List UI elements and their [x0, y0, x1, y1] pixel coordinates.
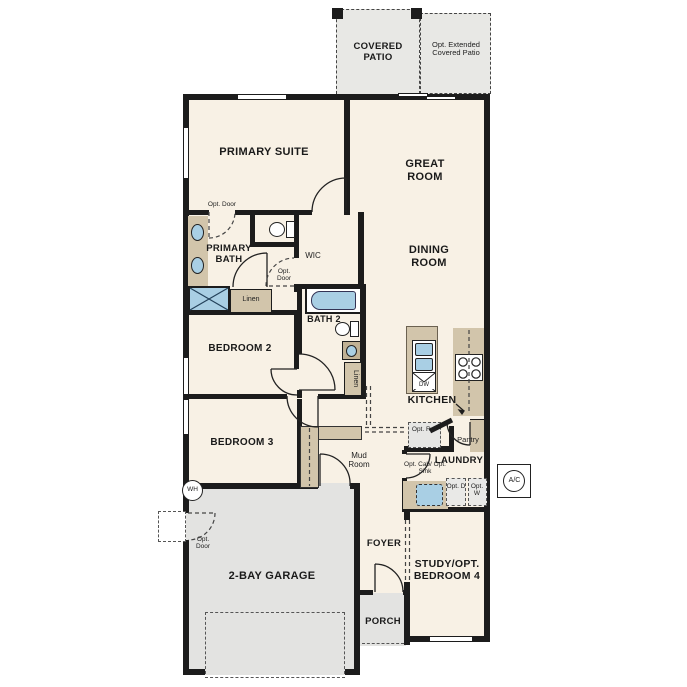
opt-extended-patio-label: Opt. Extended Covered Patio	[424, 41, 488, 58]
garage-door-zone	[205, 612, 345, 674]
mud-room-label: Mud Room	[342, 452, 376, 470]
wall	[183, 483, 318, 489]
wall	[354, 483, 360, 675]
wall	[358, 212, 364, 287]
foyer-label: FOYER	[359, 538, 409, 549]
opt-side-door-stoop	[158, 511, 186, 542]
floor-plan: COVERED PATIO Opt. Extended Covered Pati…	[0, 0, 687, 687]
primary-bath-label: PRIMARY BATH	[199, 243, 259, 265]
wall	[297, 390, 302, 398]
laundry-sink	[416, 484, 443, 506]
kitchen-sink	[415, 358, 433, 371]
garage-label: 2-BAY GARAGE	[227, 570, 317, 583]
toilet	[269, 222, 285, 237]
opt-ref-label: Opt. Ref	[409, 426, 439, 433]
opt-door-label: Opt. Door	[190, 536, 216, 551]
wh-label: WH	[182, 486, 203, 493]
opt-washer-label: Opt. W	[467, 483, 487, 498]
covered-patio-label: COVERED PATIO	[348, 41, 408, 63]
patio-post	[332, 8, 343, 19]
bedroom2-label: BEDROOM 2	[185, 343, 295, 355]
toilet	[350, 321, 359, 337]
wall	[350, 483, 360, 489]
bathtub	[311, 291, 356, 310]
bath2-label: BATH 2	[304, 314, 344, 325]
opt-door-label: Opt. Door	[271, 268, 297, 283]
sink	[346, 345, 357, 357]
opt-dryer-label: Opt. D	[446, 483, 466, 490]
window	[183, 400, 189, 434]
wall	[235, 210, 312, 215]
kitchen-label: KITCHEN	[404, 394, 460, 406]
sink	[191, 224, 204, 241]
mud-closet	[300, 426, 319, 488]
window	[183, 358, 189, 394]
dining-room-label: DINING ROOM	[399, 244, 459, 270]
sliding-door	[426, 96, 456, 100]
wic-label: WIC	[298, 252, 328, 261]
opt-door-label: Opt. Door	[197, 201, 247, 208]
study-bedroom4-label: STUDY/OPT. BEDROOM 4	[404, 558, 490, 583]
kitchen-sink	[415, 343, 433, 356]
opt-cab-sink-label: Opt. Cab/ Opt. Sink	[402, 461, 448, 476]
great-room-label: GREAT ROOM	[395, 158, 455, 184]
wall	[183, 394, 287, 399]
primary-suite-label: PRIMARY SUITE	[219, 146, 309, 159]
linen-label: Linen	[231, 296, 271, 304]
patio-post	[411, 8, 422, 19]
wall	[294, 315, 299, 369]
porch-dashed-line	[362, 643, 404, 644]
linen-label-vertical: Linen	[347, 364, 359, 394]
ac-label: A/C	[502, 477, 527, 485]
wall	[344, 94, 350, 215]
window	[430, 636, 472, 642]
wall	[183, 669, 205, 675]
range-stove	[455, 354, 483, 381]
wall	[185, 210, 209, 215]
shower	[188, 286, 230, 312]
dishwasher-label: DW	[414, 382, 434, 389]
sliding-door	[398, 93, 428, 97]
mud-bench	[318, 426, 362, 440]
toilet	[286, 221, 295, 238]
pantry-label: Pantry	[450, 436, 486, 444]
garage-door-dashed-line	[205, 677, 345, 678]
wall	[183, 540, 189, 675]
window	[238, 94, 286, 100]
porch-label: PORCH	[358, 616, 408, 627]
bedroom3-label: BEDROOM 3	[187, 437, 297, 449]
window	[183, 128, 189, 178]
wall	[357, 590, 373, 595]
